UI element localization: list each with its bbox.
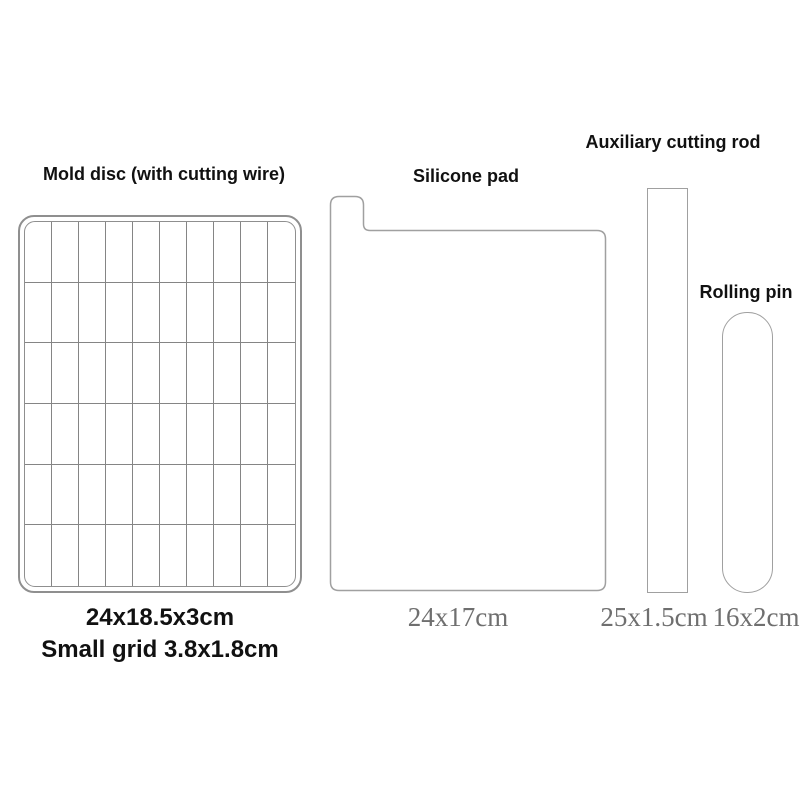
mold-grid-cell [214,404,241,465]
mold-grid-cell [106,283,133,344]
mold-disc-dimension-line-2: Small grid 3.8x1.8cm [41,634,278,666]
mold-grid-cell [52,525,79,586]
mold-grid [25,222,295,586]
silicone-pad-shape [329,194,608,594]
mold-grid-cell [79,222,106,283]
mold-grid-cell [79,343,106,404]
mold-grid-cell [25,222,52,283]
mold-grid-cell [133,343,160,404]
mold-grid-cell [268,525,295,586]
mold-grid-cell [241,343,268,404]
mold-grid-cell [241,465,268,526]
mold-grid-cell [160,343,187,404]
mold-grid-cell [52,404,79,465]
mold-grid-cell [241,283,268,344]
product-parts-diagram: Mold disc (with cutting wire) 24x18.5x3c… [0,0,800,800]
mold-grid-cell [268,404,295,465]
mold-grid-cell [25,465,52,526]
mold-grid-cell [79,404,106,465]
mold-grid-cell [160,222,187,283]
mold-grid-cell [160,404,187,465]
silicone-pad-outline [331,197,606,591]
mold-grid-cell [133,283,160,344]
mold-grid-cell [187,404,214,465]
mold-grid-cell [187,283,214,344]
mold-disc-title: Mold disc (with cutting wire) [43,164,285,184]
mold-grid-cell [79,465,106,526]
mold-grid-cell [25,404,52,465]
mold-disc-dimension-line-1: 24x18.5x3cm [41,602,278,634]
mold-grid-cell [25,525,52,586]
mold-grid-cell [187,343,214,404]
mold-grid-cell [79,525,106,586]
mold-grid-cell [214,525,241,586]
mold-grid-cell [133,222,160,283]
mold-grid-cell [79,283,106,344]
mold-grid-cell [25,283,52,344]
mold-grid-cell [25,343,52,404]
mold-grid-cell [187,465,214,526]
mold-grid-cell [214,283,241,344]
mold-grid-cell [133,465,160,526]
auxiliary-cutting-rod-shape [647,188,688,593]
mold-grid-cell [160,525,187,586]
mold-grid-cell [241,525,268,586]
mold-grid-cell [52,465,79,526]
mold-grid-cell [187,525,214,586]
mold-grid-cell [106,525,133,586]
mold-grid-cell [133,404,160,465]
auxiliary-cutting-rod-title: Auxiliary cutting rod [585,132,760,152]
rolling-pin-shape [722,312,773,593]
rolling-pin-title: Rolling pin [700,282,793,302]
mold-grid-cell [106,222,133,283]
mold-grid-cell [106,343,133,404]
mold-disc-inner-frame [24,221,296,587]
mold-grid-cell [268,283,295,344]
mold-grid-cell [241,404,268,465]
mold-grid-cell [241,222,268,283]
mold-grid-cell [160,465,187,526]
mold-grid-cell [268,343,295,404]
mold-disc-shape [18,215,302,593]
mold-grid-cell [52,283,79,344]
mold-grid-cell [268,222,295,283]
mold-disc-dimensions: 24x18.5x3cm Small grid 3.8x1.8cm [41,602,278,666]
auxiliary-cutting-rod-dimension: 25x1.5cm [600,602,707,632]
mold-grid-cell [133,525,160,586]
mold-grid-cell [160,283,187,344]
mold-grid-cell [106,404,133,465]
silicone-pad-title: Silicone pad [413,166,519,186]
mold-grid-cell [214,465,241,526]
mold-grid-cell [214,222,241,283]
mold-grid-cell [52,222,79,283]
mold-grid-cell [214,343,241,404]
mold-grid-cell [52,343,79,404]
rolling-pin-dimension: 16x2cm [713,602,800,632]
mold-grid-cell [187,222,214,283]
mold-grid-cell [268,465,295,526]
mold-grid-cell [106,465,133,526]
silicone-pad-dimension: 24x17cm [408,602,509,632]
